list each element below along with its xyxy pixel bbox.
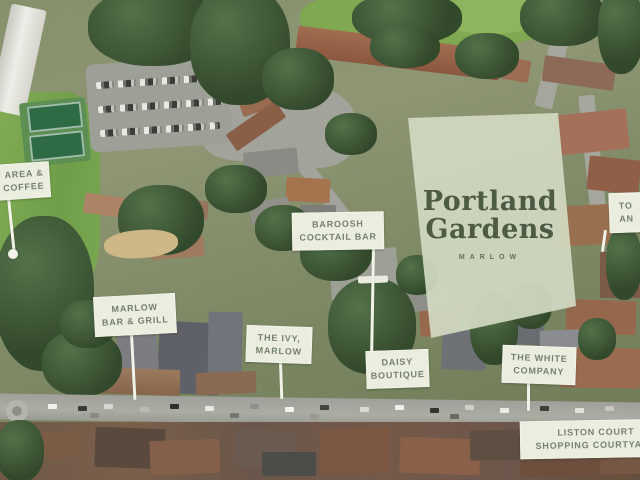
tree-canopy <box>370 26 440 68</box>
label-text: AREA & <box>4 168 44 182</box>
site-title-line2: Gardens <box>418 216 562 244</box>
street-car <box>140 407 149 412</box>
rooftop <box>586 155 640 194</box>
tree-canopy <box>606 226 640 300</box>
street-car <box>48 404 57 409</box>
rooftop <box>149 439 220 475</box>
label-the-white-company: THE WHITE COMPANY <box>501 345 576 386</box>
mini-roundabout <box>6 400 28 422</box>
street-car <box>500 408 509 413</box>
street-car <box>465 405 474 410</box>
label-text: COMPANY <box>513 365 564 378</box>
label-text: THE WHITE <box>511 352 568 365</box>
label-text: LISTON COURT <box>557 426 634 438</box>
tree-canopy <box>455 33 519 79</box>
label-marlow-bar-grill: MARLOW BAR & GRILL <box>93 293 177 337</box>
street-car <box>78 406 87 411</box>
label-text: MARLOW <box>255 345 302 358</box>
street-car <box>310 414 319 419</box>
label-text: BAR & GRILL <box>102 314 169 328</box>
street-car <box>285 407 294 412</box>
label-baroosh-cocktail-bar: BAROOSH COCKTAIL BAR <box>292 211 385 251</box>
label-text: COFFEE <box>3 180 45 194</box>
label-text: BOUTIQUE <box>371 369 425 382</box>
tree-canopy <box>578 318 616 360</box>
label-text: THE IVY, <box>258 332 301 344</box>
tree-canopy <box>262 48 334 110</box>
rooftop <box>196 371 257 395</box>
label-area-coffee: AREA & COFFEE <box>0 161 51 203</box>
rooftop <box>399 437 480 476</box>
street-car <box>430 408 439 413</box>
label-text: SHOPPING COURTYARD <box>535 439 640 452</box>
tree-canopy <box>520 0 606 46</box>
label-daisy-boutique: DAISY BOUTIQUE <box>365 349 429 389</box>
street-car <box>450 414 459 419</box>
street-car <box>605 406 614 411</box>
rooftop <box>319 427 391 475</box>
street-car <box>205 406 214 411</box>
street-car <box>230 413 239 418</box>
street-car <box>540 406 549 411</box>
street-car <box>90 413 99 418</box>
street-car <box>104 404 113 409</box>
tree-canopy <box>325 113 377 155</box>
site-subtitle: MARLOW <box>418 254 562 261</box>
street-car <box>170 404 179 409</box>
site-title-line1: Portland <box>418 188 562 216</box>
street-car <box>320 405 329 410</box>
street-car <box>575 408 584 413</box>
pointer-line-white-company <box>527 383 530 411</box>
rooftop <box>554 108 630 155</box>
label-text: DAISY <box>381 356 413 368</box>
rooftop <box>262 452 316 476</box>
street-car <box>250 404 259 409</box>
pointer-dot-area-coffee <box>8 249 18 259</box>
street-car <box>360 407 369 412</box>
tree-canopy <box>205 165 267 213</box>
label-text: AN <box>619 213 634 225</box>
street-car <box>395 405 404 410</box>
label-to-an: TO AN <box>608 191 640 233</box>
aerial-photo: Portland Gardens MARLOW AREA & COFFEE BA… <box>0 0 640 480</box>
label-the-ivy-marlow: THE IVY, MARLOW <box>245 325 312 364</box>
label-text: TO <box>619 200 633 211</box>
tree-canopy <box>0 420 44 480</box>
label-text: COCKTAIL BAR <box>299 231 376 243</box>
tree-canopy <box>598 0 640 74</box>
label-text: BAROOSH <box>312 219 364 231</box>
site-title: Portland Gardens MARLOW <box>418 188 562 261</box>
label-text: MARLOW <box>111 302 158 315</box>
label-liston-court-shopping-courtyard: LISTON COURT SHOPPING COURTYARD <box>520 419 640 460</box>
rooftop <box>285 177 330 203</box>
